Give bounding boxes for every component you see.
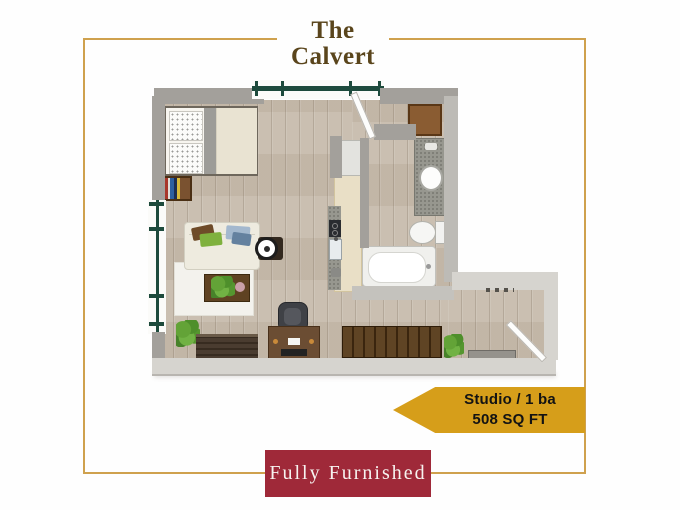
window-mullion (149, 202, 164, 206)
badge-area: 508 SQ FT (472, 410, 547, 430)
floor-plan (148, 80, 560, 380)
bed-pillow-top (169, 111, 203, 141)
toilet-bowl (409, 221, 436, 244)
table-decor (235, 282, 245, 292)
side-table-tray (255, 237, 278, 260)
coffee-cup (264, 246, 270, 252)
bathtub-faucet (426, 264, 431, 269)
counter-item (331, 268, 341, 277)
wall-bathroom-bottom (352, 286, 454, 300)
window-mullion (149, 294, 164, 298)
cooktop (329, 220, 341, 237)
furnished-banner: Fully Furnished (265, 450, 431, 497)
bed-duvet (216, 108, 257, 174)
kitchen-sink (329, 239, 342, 260)
hallway-bench (342, 326, 442, 358)
bookshelf (162, 176, 192, 201)
window-mullion (149, 322, 164, 326)
vanity-sink (419, 165, 443, 191)
vanity-faucet (425, 143, 437, 150)
furnished-banner-label: Fully Furnished (269, 462, 426, 485)
window-mullion (149, 227, 164, 231)
chair-seat (284, 308, 301, 325)
kitchen-wall-stub (330, 136, 342, 178)
badge-unit-type: Studio / 1 ba (464, 390, 556, 410)
entry-hooks (486, 288, 514, 292)
wall-hallway-right (544, 272, 558, 360)
coffee-table (204, 274, 250, 302)
wall-bathroom-divider (360, 138, 369, 248)
window-mullion (281, 81, 284, 96)
sofa-pillow-blue (231, 232, 251, 247)
window-mullion (255, 81, 258, 96)
bed-runner (204, 108, 216, 174)
desk-paper (288, 338, 300, 345)
left-window (148, 200, 166, 334)
title-line-2: Calvert (291, 44, 375, 70)
title-box: The Calvert (277, 6, 389, 70)
wall-top-left (154, 88, 264, 104)
vanity (414, 138, 448, 216)
desk-printer (281, 349, 307, 356)
bed-pillow-bottom (169, 143, 203, 174)
media-bench (196, 334, 258, 360)
desk (268, 326, 320, 360)
wall-bathroom-stub (374, 124, 416, 140)
window-frame-bar (156, 200, 159, 334)
flyer-page: The Calvert (0, 0, 680, 510)
bathtub (362, 246, 436, 287)
window-frame-bar (252, 86, 384, 91)
table-plant (211, 276, 235, 298)
wall-bottom (152, 358, 556, 376)
desk-knob (273, 339, 278, 344)
bathtub-basin (368, 252, 426, 283)
burner (332, 223, 338, 229)
burner (332, 230, 338, 236)
wall-left-upper (152, 96, 165, 202)
balcony-window (252, 80, 384, 99)
wall-bathroom-right (444, 96, 458, 282)
title-line-1: The (311, 18, 354, 44)
faucet (334, 237, 338, 241)
hallway-plant (444, 334, 464, 358)
desk-knob (309, 339, 314, 344)
sofa-pillow-green (199, 232, 222, 247)
